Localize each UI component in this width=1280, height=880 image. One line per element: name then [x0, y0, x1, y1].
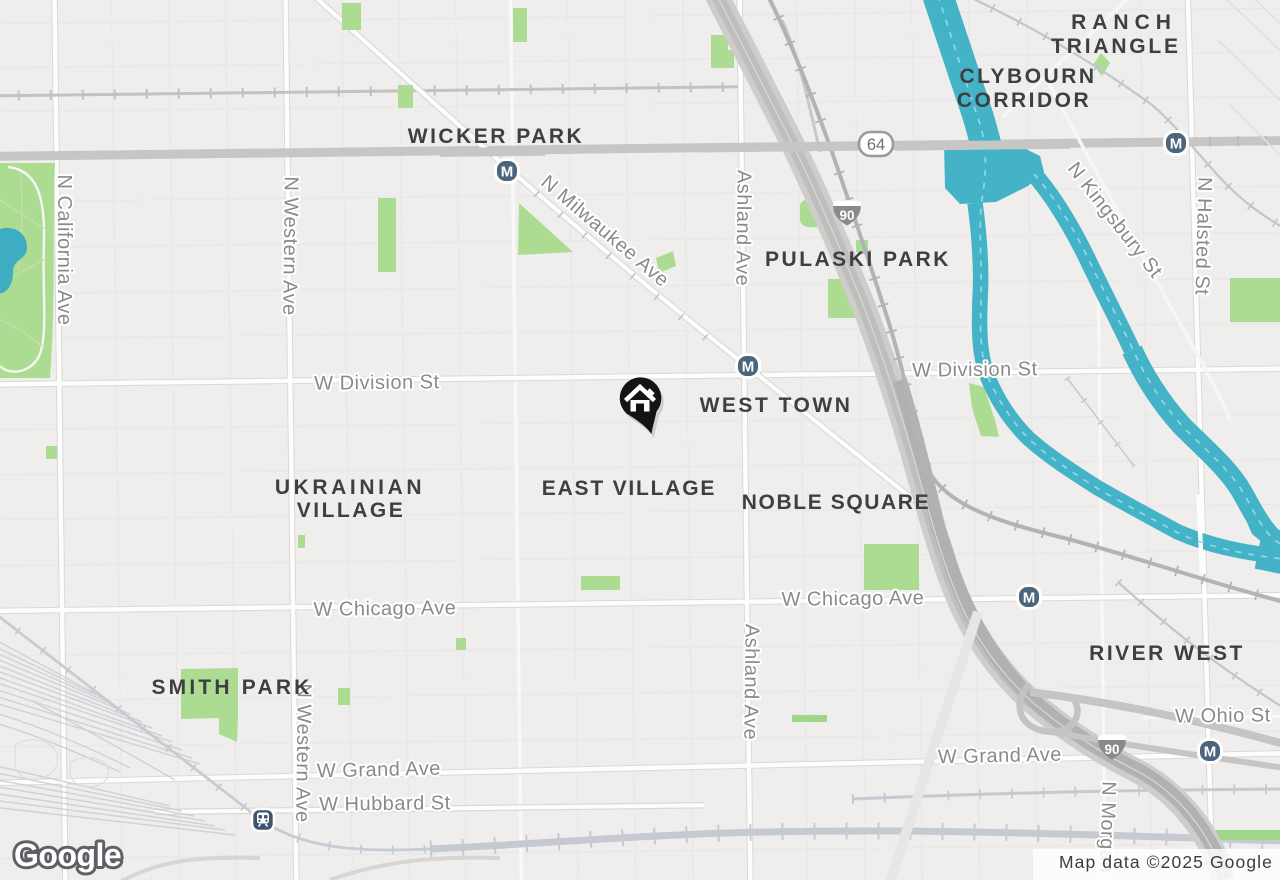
svg-text:W Hubbard St: W Hubbard St: [319, 792, 451, 816]
svg-text:W Division St: W Division St: [314, 371, 440, 395]
svg-text:90: 90: [839, 208, 854, 223]
svg-text:W Grand Ave: W Grand Ave: [938, 744, 1063, 769]
svg-text:N California Ave: N California Ave: [53, 174, 75, 325]
svg-text:M: M: [742, 359, 755, 376]
svg-text:N Halsted St: N Halsted St: [1190, 177, 1215, 296]
svg-text:Map data ©2025 Google: Map data ©2025 Google: [1059, 852, 1273, 872]
svg-text:WICKER PARK: WICKER PARK: [408, 125, 584, 148]
svg-text:M: M: [1204, 744, 1217, 761]
svg-text:W Chicago Ave: W Chicago Ave: [781, 587, 924, 611]
svg-text:UKRAINIAN: UKRAINIAN: [275, 476, 425, 499]
svg-text:W Ohio St: W Ohio St: [1175, 704, 1271, 727]
svg-text:M: M: [1170, 136, 1183, 153]
svg-text:90: 90: [1104, 742, 1119, 757]
svg-text:SMITH PARK: SMITH PARK: [151, 676, 312, 699]
svg-text:CORRIDOR: CORRIDOR: [957, 89, 1091, 112]
svg-text:W Grand Ave: W Grand Ave: [317, 758, 442, 783]
svg-text:Ashland Ave: Ashland Ave: [739, 624, 762, 741]
svg-text:WEST TOWN: WEST TOWN: [700, 394, 853, 417]
svg-text:RIVER WEST: RIVER WEST: [1089, 642, 1245, 665]
svg-text:W Chicago Ave: W Chicago Ave: [313, 597, 456, 621]
svg-text:N Western Ave: N Western Ave: [291, 683, 315, 822]
svg-text:N Western Ave: N Western Ave: [278, 176, 302, 315]
svg-text:W Division St: W Division St: [912, 358, 1038, 382]
svg-text:RANCH: RANCH: [1071, 11, 1177, 34]
svg-text:CLYBOURN: CLYBOURN: [959, 65, 1096, 88]
svg-text:TRIANGLE: TRIANGLE: [1051, 35, 1181, 58]
svg-text:PULASKI PARK: PULASKI PARK: [765, 248, 951, 271]
svg-text:M: M: [1023, 590, 1036, 607]
svg-text:NOBLE SQUARE: NOBLE SQUARE: [742, 491, 930, 514]
svg-text:Ashland Ave: Ashland Ave: [731, 170, 754, 287]
svg-text:Google: Google: [14, 837, 121, 873]
svg-text:M: M: [501, 164, 514, 181]
svg-text:VILLAGE: VILLAGE: [297, 499, 406, 522]
svg-text:64: 64: [867, 136, 885, 154]
svg-text:EAST VILLAGE: EAST VILLAGE: [542, 477, 716, 500]
